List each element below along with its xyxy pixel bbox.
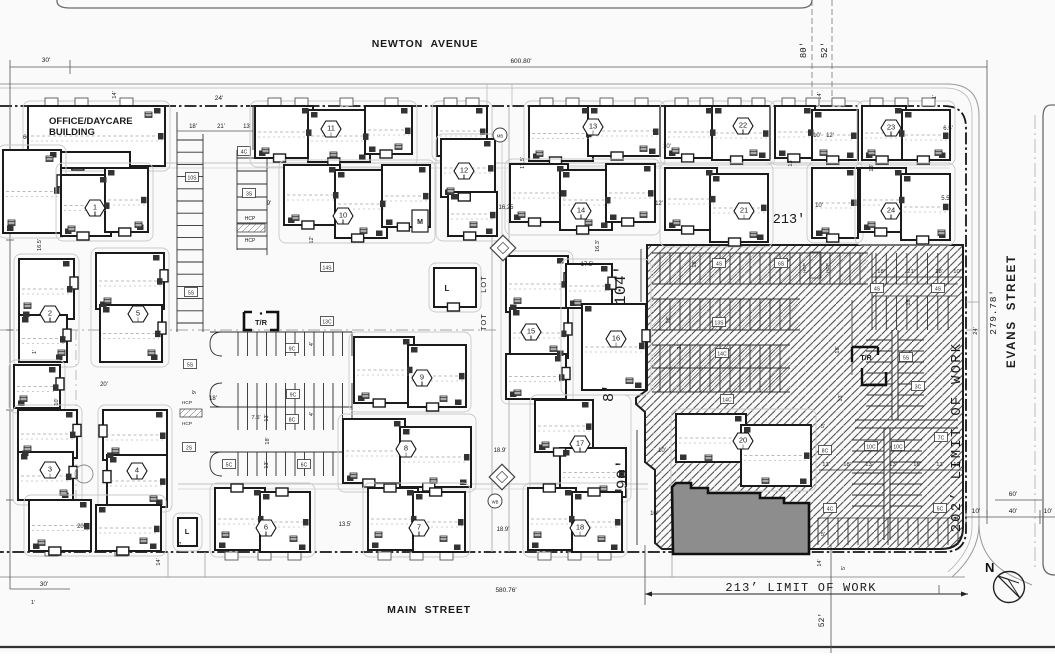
- svg-text:30': 30': [42, 57, 50, 64]
- svg-text:213': 213': [773, 213, 805, 228]
- svg-text:13': 13': [788, 159, 794, 166]
- svg-text:9: 9: [420, 373, 424, 382]
- svg-text:52': 52': [818, 613, 827, 627]
- svg-text:18': 18': [189, 124, 197, 130]
- svg-text:HCP: HCP: [825, 263, 830, 273]
- svg-text:II: II: [135, 474, 139, 480]
- svg-text:10': 10': [650, 511, 658, 517]
- svg-text:10': 10': [815, 203, 823, 209]
- svg-text:213’ LIMIT OF WORK: 213’ LIMIT OF WORK: [725, 581, 876, 595]
- svg-text:580.76': 580.76': [495, 587, 516, 594]
- svg-text:13': 13': [264, 414, 270, 421]
- svg-text:10': 10': [54, 398, 60, 405]
- svg-text:4S: 4S: [935, 286, 942, 292]
- svg-text:6C: 6C: [301, 462, 308, 468]
- svg-text:HCP: HCP: [182, 421, 192, 427]
- svg-text:II: II: [578, 447, 582, 453]
- svg-text:24': 24': [973, 327, 979, 335]
- svg-text:EVANS STREET: EVANS STREET: [1006, 254, 1018, 368]
- svg-text:60': 60': [1009, 491, 1017, 498]
- svg-text:24': 24': [215, 95, 223, 102]
- svg-text:16.5': 16.5': [37, 239, 43, 251]
- svg-text:8': 8': [601, 384, 618, 402]
- svg-text:II: II: [529, 335, 533, 341]
- svg-text:6S: 6S: [778, 261, 785, 267]
- svg-text:HCP: HCP: [245, 216, 256, 222]
- svg-text:3: 3: [48, 465, 52, 474]
- svg-text:52': 52': [820, 42, 830, 58]
- svg-text:90': 90': [614, 459, 632, 489]
- svg-text:13': 13': [936, 462, 944, 468]
- svg-text:6.5': 6.5': [943, 126, 953, 132]
- svg-text:HCP: HCP: [182, 400, 192, 406]
- svg-text:13': 13': [264, 461, 270, 468]
- svg-text:18': 18': [877, 269, 885, 275]
- svg-text:17.5': 17.5': [520, 157, 526, 169]
- svg-text:17: 17: [576, 439, 584, 448]
- svg-text:3S: 3S: [246, 191, 253, 197]
- svg-text:6: 6: [264, 523, 268, 532]
- svg-text:4': 4': [309, 412, 315, 416]
- svg-text:HCP: HCP: [245, 238, 256, 244]
- svg-text:13': 13': [889, 462, 897, 468]
- svg-text:5C: 5C: [937, 506, 944, 512]
- svg-text:9': 9': [267, 201, 271, 207]
- svg-text:18': 18': [935, 269, 943, 275]
- svg-text:10': 10': [813, 133, 821, 139]
- svg-text:18': 18': [835, 346, 841, 353]
- svg-text:T/R: T/R: [860, 355, 871, 362]
- svg-text:18': 18': [209, 396, 217, 402]
- svg-text:13': 13': [865, 462, 873, 468]
- svg-text:LOT: LOT: [479, 275, 488, 293]
- svg-text:1': 1': [932, 95, 938, 99]
- svg-text:5: 5: [136, 309, 140, 318]
- svg-text:14: 14: [577, 206, 585, 215]
- svg-text:9': 9': [192, 390, 198, 394]
- svg-text:9C: 9C: [290, 392, 297, 398]
- svg-text:1': 1': [31, 600, 35, 606]
- svg-text:4S: 4S: [874, 286, 881, 292]
- svg-text:7.5': 7.5': [251, 415, 260, 421]
- svg-text:II: II: [579, 214, 583, 220]
- svg-text:23: 23: [887, 123, 895, 132]
- svg-text:7C: 7C: [938, 435, 945, 441]
- svg-text:15: 15: [527, 327, 535, 336]
- svg-text:L: L: [185, 527, 190, 536]
- svg-text:13: 13: [589, 122, 597, 131]
- svg-text:18': 18': [913, 462, 921, 468]
- svg-text:5': 5': [821, 532, 825, 538]
- svg-text:10S: 10S: [188, 175, 198, 181]
- svg-text:18': 18': [906, 298, 912, 305]
- svg-text:18': 18': [666, 316, 672, 323]
- svg-text:16,25: 16,25: [498, 205, 514, 211]
- svg-text:21': 21': [907, 269, 915, 275]
- svg-text:1: 1: [93, 203, 97, 212]
- svg-text:18': 18': [843, 462, 851, 468]
- svg-text:11: 11: [327, 124, 335, 133]
- svg-text:14S: 14S: [323, 265, 333, 271]
- svg-text:14C: 14C: [717, 351, 727, 357]
- svg-text:4: 4: [135, 466, 139, 475]
- svg-text:T/R: T/R: [255, 318, 268, 327]
- svg-text:16: 16: [612, 334, 620, 343]
- svg-text:600.80': 600.80': [510, 58, 531, 65]
- svg-text:BUILDING: BUILDING: [49, 127, 95, 138]
- svg-text:18.9': 18.9': [497, 527, 510, 533]
- svg-text:13': 13': [822, 462, 830, 468]
- svg-text:12': 12': [826, 133, 834, 139]
- svg-text:10': 10': [1044, 508, 1052, 515]
- svg-text:202’ LIMIT OF WORK: 202’ LIMIT OF WORK: [949, 342, 965, 533]
- svg-text:104': 104': [612, 265, 630, 305]
- svg-text:2S: 2S: [186, 445, 193, 451]
- svg-text:17.5': 17.5': [581, 262, 594, 268]
- svg-text:8C: 8C: [822, 448, 829, 454]
- svg-text:18.9': 18.9': [494, 448, 507, 454]
- svg-text:13': 13': [869, 164, 875, 171]
- svg-text:II: II: [48, 317, 52, 323]
- svg-text:13.5': 13.5': [339, 522, 352, 528]
- svg-text:8: 8: [404, 444, 408, 453]
- svg-text:12': 12': [655, 201, 663, 207]
- svg-text:10': 10': [953, 269, 961, 275]
- svg-text:II: II: [417, 531, 421, 537]
- svg-text:18: 18: [576, 523, 584, 532]
- svg-text:5': 5': [821, 424, 825, 430]
- svg-text:10: 10: [339, 211, 347, 220]
- svg-text:279.78': 279.78': [988, 289, 999, 335]
- svg-text:II: II: [741, 129, 745, 135]
- svg-text:10': 10': [663, 144, 671, 150]
- svg-text:II: II: [462, 174, 466, 180]
- svg-text:II: II: [420, 381, 424, 387]
- svg-text:5S: 5S: [187, 362, 194, 368]
- svg-text:10': 10': [658, 448, 666, 454]
- svg-text:4S: 4S: [716, 261, 723, 267]
- svg-text:8C: 8C: [289, 417, 296, 423]
- svg-text:HCP: HCP: [802, 263, 807, 273]
- svg-text:3C: 3C: [915, 384, 922, 390]
- svg-text:20': 20': [100, 382, 108, 388]
- svg-text:5C: 5C: [226, 462, 233, 468]
- svg-text:10C: 10C: [893, 444, 903, 450]
- svg-text:9C: 9C: [289, 346, 296, 352]
- svg-text:2: 2: [48, 309, 52, 318]
- svg-text:24: 24: [887, 206, 895, 215]
- svg-text:M: M: [417, 219, 423, 226]
- svg-text:5S: 5S: [903, 355, 910, 361]
- svg-text:OFFICE/DAYCARE: OFFICE/DAYCARE: [49, 116, 133, 127]
- svg-text:18': 18': [265, 437, 271, 444]
- svg-text:4C: 4C: [241, 149, 248, 155]
- svg-text:13': 13': [838, 394, 844, 401]
- svg-text:MAIN STREET: MAIN STREET: [387, 604, 471, 616]
- svg-text:7: 7: [417, 523, 421, 532]
- svg-text:14C: 14C: [722, 397, 732, 403]
- svg-text:12': 12': [309, 236, 315, 243]
- svg-text:L: L: [445, 284, 450, 293]
- svg-text:80': 80': [799, 42, 809, 58]
- svg-text:21': 21': [677, 342, 683, 349]
- svg-text:II: II: [889, 214, 893, 220]
- svg-text:TOT: TOT: [479, 313, 488, 331]
- svg-text:22: 22: [739, 121, 747, 130]
- svg-text:II: II: [264, 531, 268, 537]
- svg-text:20: 20: [739, 436, 747, 445]
- svg-text:25': 25': [177, 541, 183, 548]
- svg-text:II: II: [93, 211, 97, 217]
- svg-text:II: II: [889, 131, 893, 137]
- svg-text:16.3': 16.3': [595, 240, 601, 252]
- svg-text:5': 5': [841, 566, 847, 570]
- svg-text:4': 4': [309, 342, 315, 346]
- svg-text:14': 14': [156, 558, 162, 566]
- svg-text:13S: 13S: [715, 320, 725, 326]
- svg-text:NEWTON AVENUE: NEWTON AVENUE: [372, 38, 478, 50]
- svg-text:13C: 13C: [322, 319, 332, 325]
- svg-text:21: 21: [740, 206, 748, 215]
- svg-text:21': 21': [217, 124, 225, 130]
- svg-text:WB: WB: [492, 500, 499, 505]
- svg-text:5.5': 5.5': [941, 196, 951, 202]
- svg-text:20': 20': [77, 524, 85, 530]
- svg-text:30': 30': [40, 581, 48, 588]
- svg-text:II: II: [341, 219, 345, 225]
- svg-text:MB: MB: [497, 134, 503, 139]
- svg-text:10': 10': [972, 508, 980, 515]
- svg-text:5S: 5S: [188, 290, 195, 296]
- svg-text:4C: 4C: [827, 506, 834, 512]
- svg-text:18': 18': [692, 260, 698, 267]
- svg-text:40': 40': [1009, 508, 1017, 515]
- svg-text:14': 14': [817, 559, 823, 566]
- svg-text:14': 14': [112, 91, 118, 99]
- svg-text:1': 1': [32, 350, 38, 354]
- svg-text:12: 12: [460, 166, 468, 175]
- svg-text:N: N: [985, 560, 994, 575]
- svg-text:10C: 10C: [866, 444, 876, 450]
